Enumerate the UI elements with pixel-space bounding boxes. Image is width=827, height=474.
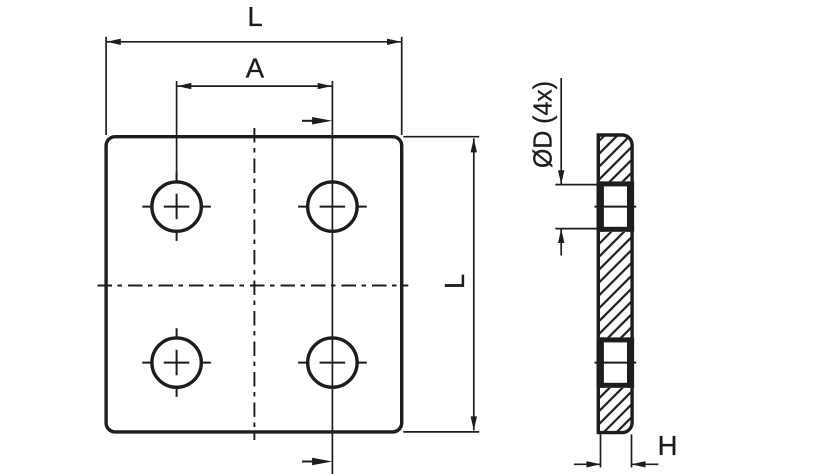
svg-text:A: A: [246, 53, 265, 84]
svg-text:ØD (4x): ØD (4x): [528, 81, 558, 168]
svg-text:L: L: [247, 1, 262, 32]
svg-text:H: H: [658, 430, 678, 461]
svg-text:L: L: [439, 274, 470, 289]
